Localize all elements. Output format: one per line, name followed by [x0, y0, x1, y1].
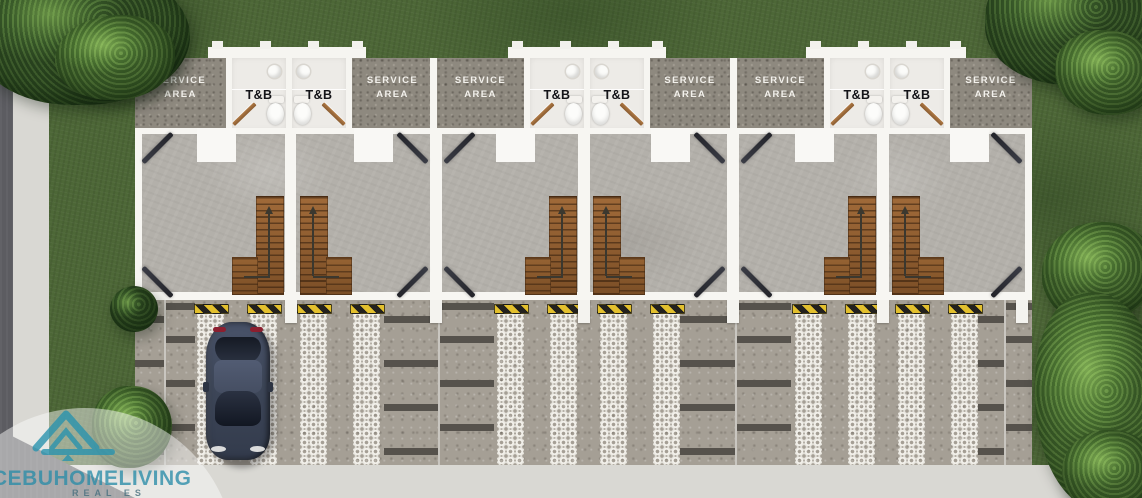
- partition-wall: [430, 58, 437, 130]
- rear-door-threshold: [795, 128, 834, 162]
- wheel-stop: [792, 304, 827, 314]
- service-area-label: SERVICE AREA: [358, 74, 428, 102]
- driveway-groove-column: [1004, 300, 1032, 465]
- stair-arrowhead-icon: [857, 206, 865, 214]
- toilet-icon: [892, 103, 909, 125]
- house-outline-icon: [26, 404, 122, 462]
- stair-arrowhead-icon: [602, 206, 610, 214]
- wheel-stop: [247, 304, 282, 314]
- service-area: SERVICE AREA: [650, 58, 730, 130]
- toilet-bath-room: T&B: [530, 58, 584, 130]
- wall-top-tab: [950, 41, 961, 49]
- car-rear-window: [215, 337, 261, 362]
- wheel-stop: [597, 304, 632, 314]
- car-windshield: [215, 391, 261, 426]
- car-body: [206, 322, 270, 460]
- wheel-stop: [845, 304, 880, 314]
- stall-divider-pavers: [550, 312, 577, 465]
- stall-divider-pavers: [497, 312, 524, 465]
- partition-wall: [824, 47, 830, 130]
- tb-door-leaf: [830, 102, 854, 126]
- party-wall: [727, 128, 739, 300]
- building-wall-right: [1025, 128, 1032, 300]
- tb-door-leaf: [530, 102, 554, 126]
- wall-top-tab: [906, 41, 917, 49]
- stair-arrowhead-icon: [901, 206, 909, 214]
- tail-light-left: [213, 327, 226, 332]
- stair-direction-arrow: [905, 276, 931, 278]
- stair-direction-arrow: [605, 214, 607, 276]
- sink-icon: [866, 65, 879, 78]
- stall-divider-pavers: [795, 312, 822, 465]
- partition-wall: [524, 47, 530, 130]
- toilet-icon: [565, 103, 582, 125]
- tb-door-leaf: [619, 102, 643, 126]
- toilet-bath-room: T&B: [830, 58, 884, 130]
- tb-door-leaf: [321, 102, 345, 126]
- wheel-stop: [297, 304, 332, 314]
- wall-stub: [877, 299, 889, 323]
- watermark-tagline: REAL ES: [72, 488, 146, 498]
- headlight-right: [250, 446, 265, 452]
- wall-top-tab: [810, 41, 821, 49]
- stair-arrowhead-icon: [265, 206, 273, 214]
- site-plan-scene: SERVICE AREA SERVICE AREA SERVICE AREA S…: [0, 0, 1142, 498]
- partition-wall: [584, 47, 590, 130]
- toilet-icon: [267, 103, 284, 125]
- party-wall: [430, 128, 442, 300]
- driveway-groove-column: [735, 300, 792, 465]
- driveway-groove-column: [978, 300, 1004, 465]
- bush: [110, 286, 158, 332]
- sink-icon: [595, 65, 608, 78]
- wall-stub: [727, 299, 739, 323]
- rear-door-threshold: [354, 128, 393, 162]
- tb-label: T&B: [530, 88, 584, 102]
- driveway-ramp: [384, 300, 494, 465]
- wheel-stop: [350, 304, 385, 314]
- stair-arrowhead-icon: [558, 206, 566, 214]
- wheel-stop: [948, 304, 983, 314]
- sink-icon: [895, 65, 908, 78]
- sink-icon: [566, 65, 579, 78]
- tb-label: T&B: [890, 88, 944, 102]
- stair-direction-arrow: [860, 214, 862, 276]
- wheel-stop: [547, 304, 582, 314]
- stall-divider-pavers: [951, 312, 978, 465]
- tb-label: T&B: [292, 88, 346, 102]
- wall-stub: [578, 299, 590, 323]
- partition-wall: [884, 47, 890, 130]
- side-mirror-left: [203, 382, 209, 392]
- driveway-ramp: [978, 300, 1032, 465]
- wall-stub: [1016, 299, 1028, 323]
- wall-top-tab: [512, 41, 523, 49]
- party-wall: [877, 128, 889, 300]
- stair-direction-arrow: [313, 276, 339, 278]
- stair-direction-arrow: [836, 276, 862, 278]
- service-area-label: SERVICE AREA: [446, 74, 516, 102]
- stair-direction-arrow: [537, 276, 563, 278]
- service-area-label: SERVICE AREA: [956, 74, 1026, 102]
- stair-arrowhead-icon: [309, 206, 317, 214]
- wall-top-tab: [308, 41, 319, 49]
- stall-divider-pavers: [600, 312, 627, 465]
- toilet-bath-room: T&B: [292, 58, 346, 130]
- driveway-groove-column: [680, 300, 735, 465]
- sink-icon: [268, 65, 281, 78]
- wheel-stop: [194, 304, 229, 314]
- partition-wall: [644, 47, 650, 130]
- rear-door-threshold: [950, 128, 989, 162]
- tb-label: T&B: [830, 88, 884, 102]
- wall-stub: [430, 299, 442, 323]
- rear-door-threshold: [197, 128, 236, 162]
- stall-divider-pavers: [898, 312, 925, 465]
- party-wall: [578, 128, 590, 300]
- wall-top-tab: [652, 41, 663, 49]
- side-mirror-right: [267, 382, 273, 392]
- partition-wall: [730, 58, 737, 130]
- driveway-groove-column: [438, 300, 494, 465]
- wall-top-tab: [608, 41, 619, 49]
- driveway-ramp: [680, 300, 791, 465]
- service-area: SERVICE AREA: [352, 58, 433, 130]
- service-area: SERVICE AREA: [437, 58, 524, 130]
- toilet-bath-room: T&B: [890, 58, 944, 130]
- toilet-icon: [294, 103, 311, 125]
- parked-car: [204, 320, 272, 464]
- tail-light-right: [250, 327, 263, 332]
- stair-direction-arrow: [904, 214, 906, 276]
- wheel-stop: [895, 304, 930, 314]
- wall-stub: [285, 299, 297, 323]
- tree-canopy: [1055, 30, 1142, 115]
- toilet-icon: [592, 103, 609, 125]
- stall-divider-pavers: [653, 312, 680, 465]
- wall-top-tab: [858, 41, 869, 49]
- building-wall-left: [135, 128, 142, 300]
- stall-divider-pavers: [300, 312, 327, 465]
- stair-direction-arrow: [244, 276, 270, 278]
- wheel-stop: [650, 304, 685, 314]
- stair-direction-arrow: [606, 276, 632, 278]
- wall-top-tab: [352, 41, 363, 49]
- partition-wall: [346, 47, 352, 130]
- partition-wall: [286, 47, 292, 130]
- driveway-groove-column: [384, 300, 438, 465]
- wall-top-tab: [560, 41, 571, 49]
- toilet-bath-room: T&B: [232, 58, 286, 130]
- wheel-stop: [494, 304, 529, 314]
- headlight-left: [211, 446, 226, 452]
- stair-direction-arrow: [561, 214, 563, 276]
- tb-door-leaf: [232, 102, 256, 126]
- rear-door-threshold: [496, 128, 535, 162]
- tb-door-leaf: [919, 102, 943, 126]
- service-area-label: SERVICE AREA: [655, 74, 725, 102]
- toilet-bath-room: T&B: [590, 58, 644, 130]
- party-wall: [285, 128, 296, 300]
- sink-icon: [297, 65, 310, 78]
- tb-label: T&B: [232, 88, 286, 102]
- car-roof: [214, 360, 262, 393]
- tb-label: T&B: [590, 88, 644, 102]
- stair-direction-arrow: [312, 214, 314, 276]
- stall-divider-pavers: [353, 312, 380, 465]
- toilet-icon: [865, 103, 882, 125]
- stall-divider-pavers: [848, 312, 875, 465]
- partition-wall: [226, 47, 232, 130]
- service-area-label: SERVICE AREA: [746, 74, 816, 102]
- wall-top-tab: [212, 41, 223, 49]
- service-area: SERVICE AREA: [737, 58, 824, 130]
- rear-door-threshold: [651, 128, 690, 162]
- stair-direction-arrow: [268, 214, 270, 276]
- wall-top-tab: [260, 41, 271, 49]
- partition-wall: [944, 47, 950, 130]
- tree-canopy: [55, 15, 175, 100]
